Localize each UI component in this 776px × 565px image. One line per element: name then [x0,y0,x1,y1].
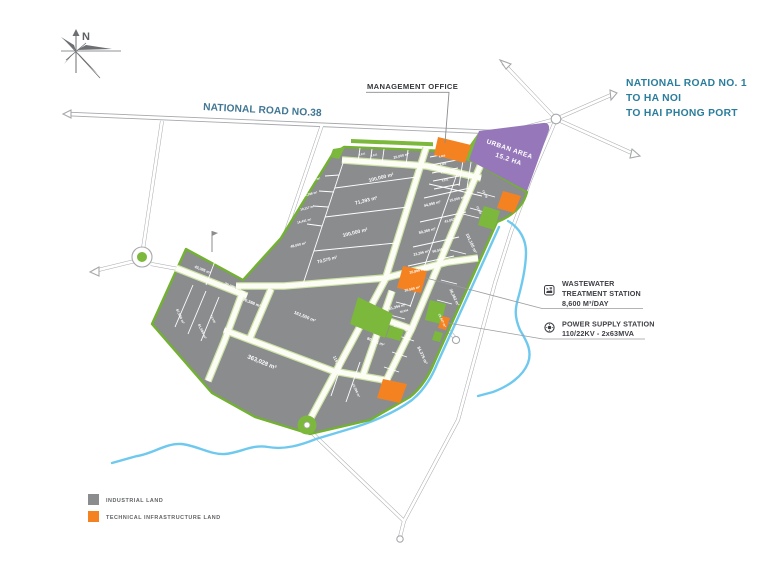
svg-text:POWER SUPPLY STATION: POWER SUPPLY STATION [562,320,655,329]
svg-text:TO HA NOI: TO HA NOI [626,93,681,104]
svg-text:110/22KV - 2x63MVA: 110/22KV - 2x63MVA [562,329,634,338]
svg-text:NATIONAL ROAD NO.38: NATIONAL ROAD NO.38 [203,102,322,119]
svg-text:TREATMENT STATION: TREATMENT STATION [562,289,641,298]
svg-text:TO HAI PHONG PORT: TO HAI PHONG PORT [626,108,738,119]
svg-text:N: N [82,31,90,43]
svg-text:INDUSTRIAL LAND: INDUSTRIAL LAND [106,498,163,504]
svg-text:NATIONAL ROAD NO. 1: NATIONAL ROAD NO. 1 [626,78,747,89]
svg-text:MANAGEMENT OFFICE: MANAGEMENT OFFICE [367,82,458,91]
svg-text:WASTEWATER: WASTEWATER [562,279,615,288]
svg-text:TECHNICAL INFRASTRUCTURE LAND: TECHNICAL INFRASTRUCTURE LAND [106,515,221,521]
svg-text:8,600 M³/DAY: 8,600 M³/DAY [562,299,609,308]
